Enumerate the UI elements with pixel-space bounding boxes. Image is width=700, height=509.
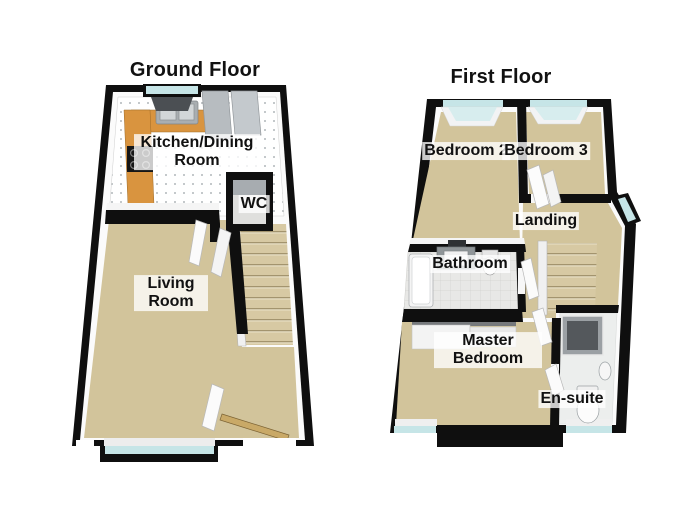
- gf-door-opening: [243, 438, 296, 447]
- gf-divider-wall: [105, 210, 220, 224]
- gf-bay-window: [104, 438, 215, 454]
- room-label-master-bedroom: Master Bedroom: [434, 332, 542, 368]
- ff-ensuite-top-wall: [556, 305, 619, 313]
- ff-bottom-left-window: [394, 419, 437, 433]
- ground-floor-title: Ground Floor: [128, 59, 262, 81]
- room-label-wc: WC: [239, 195, 270, 213]
- room-label-bathroom: Bathroom: [430, 255, 510, 273]
- ff-bed2-bath-wall-top: [409, 238, 525, 244]
- ff-stair-banister: [538, 241, 547, 315]
- ff-bedroom3-window: [528, 100, 588, 124]
- room-label-living-room: Living Room: [134, 275, 208, 311]
- first-floor-title: First Floor: [448, 66, 553, 88]
- ff-ensuite-basin: [599, 362, 611, 380]
- room-label-kitchen-dining: Kitchen/Dining Room: [134, 134, 260, 170]
- gf-staircase: [240, 224, 293, 345]
- ff-bedroom2-window: [441, 100, 503, 126]
- room-label-bedroom-2: Bedroom 2: [422, 142, 510, 160]
- floorplan-image: Ground Floor Kitchen/Dining Room WC Livi…: [0, 0, 700, 509]
- ff-staircase: [546, 243, 597, 313]
- floorplan-canvas: [0, 0, 700, 509]
- ff-bath-master-wall: [402, 309, 523, 322]
- room-label-en-suite: En-suite: [538, 390, 605, 408]
- room-label-landing: Landing: [513, 212, 579, 230]
- room-label-bedroom-3: Bedroom 3: [502, 142, 590, 160]
- gf-side-opening: [76, 440, 94, 447]
- gf-divider-wall-top: [106, 203, 219, 210]
- ff-shower-cubicle: [562, 316, 603, 355]
